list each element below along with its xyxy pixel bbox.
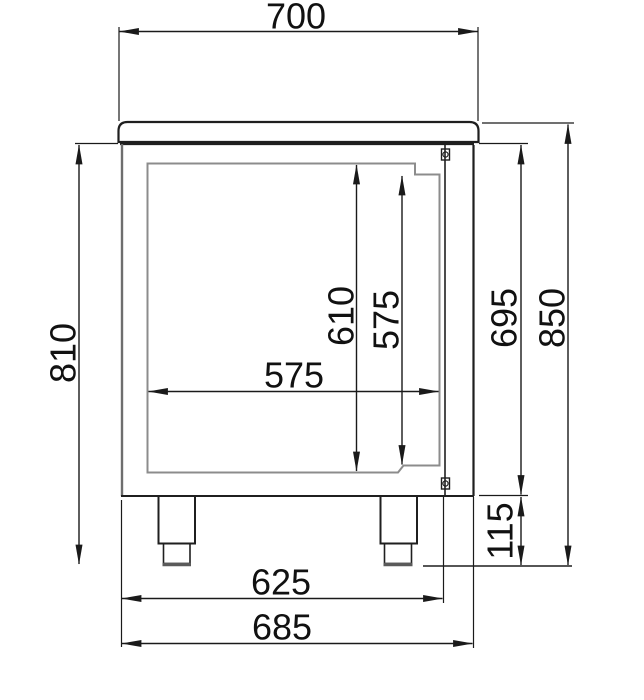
dim-foot-height: 115: [480, 497, 522, 565]
dim-interior-depth: 575: [149, 355, 439, 396]
dim-interior-height: 610: [321, 165, 362, 471]
left-foot: [159, 496, 196, 565]
dim-label-625: 625: [251, 562, 311, 603]
right-foot: [381, 496, 418, 565]
cabinet-body-outline: [120, 144, 474, 496]
dim-label-575-horizontal: 575: [264, 355, 324, 396]
dim-label-575-vertical: 575: [366, 290, 407, 350]
dim-label-685: 685: [252, 607, 312, 648]
technical-drawing: 700 810 610 575 575 695: [0, 0, 644, 700]
door-panel: [445, 145, 474, 496]
drawing-sheet: 700 810 610 575 575 695: [0, 0, 644, 700]
dim-label-850: 850: [532, 288, 573, 348]
dim-label-610: 610: [321, 286, 362, 346]
dim-carcass-height: 695: [479, 144, 528, 496]
dim-body-height: 810: [43, 144, 119, 565]
dim-label-115: 115: [480, 502, 521, 559]
dim-label-810: 810: [43, 323, 84, 383]
countertop: [119, 122, 479, 142]
dim-label-700: 700: [266, 0, 326, 37]
dim-door-opening-height: 575: [366, 176, 407, 465]
dim-label-695: 695: [484, 288, 525, 348]
dim-countertop-depth: 700: [119, 0, 478, 121]
